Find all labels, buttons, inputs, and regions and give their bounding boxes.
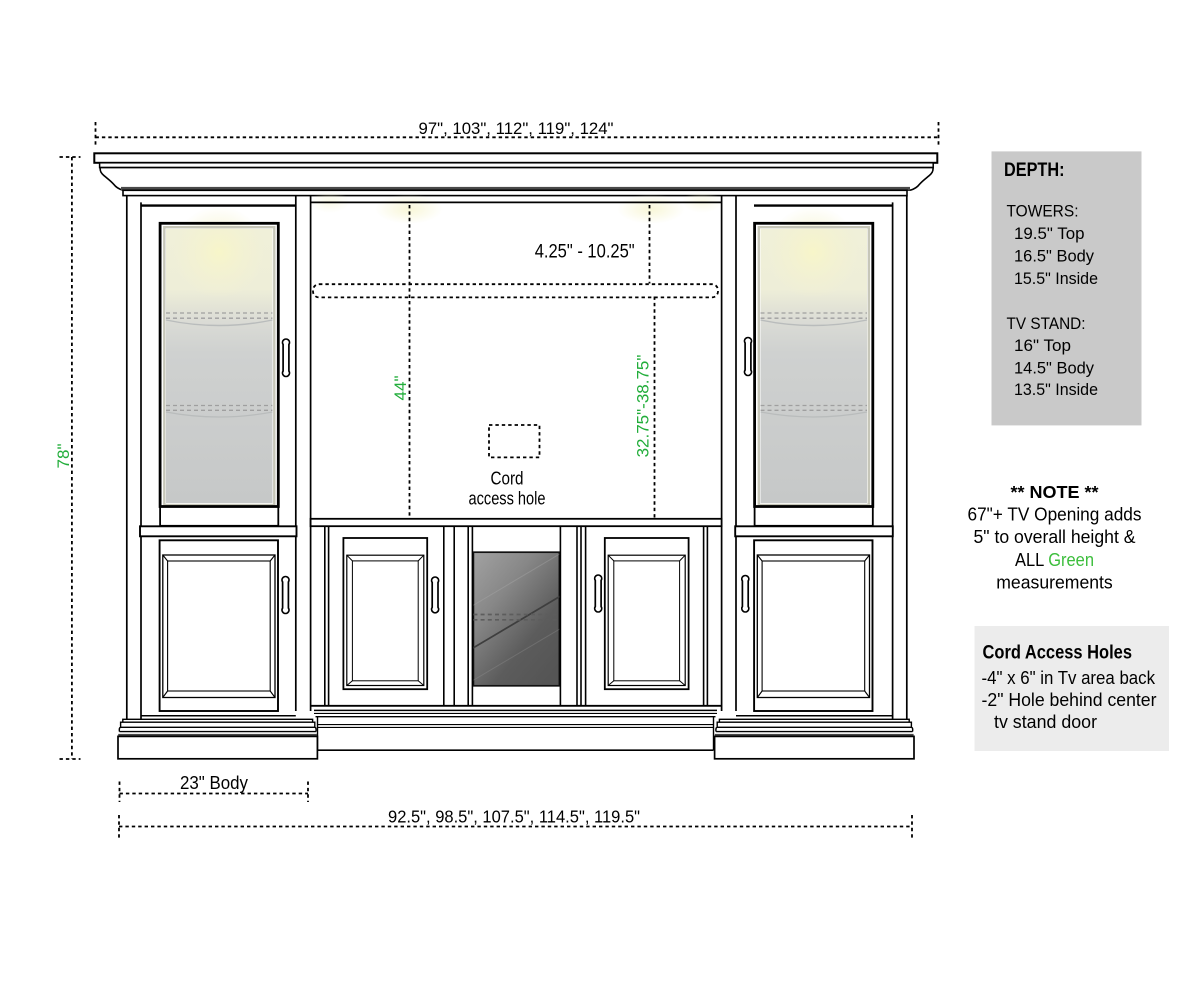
svg-text:TOWERS:: TOWERS: (1007, 202, 1079, 221)
svg-text:4.25" - 10.25": 4.25" - 10.25" (535, 241, 635, 263)
svg-text:-4" x 6" in Tv area back: -4" x 6" in Tv area back (982, 668, 1156, 688)
svg-text:tv stand door: tv stand door (994, 712, 1097, 732)
svg-text:78": 78" (54, 444, 73, 469)
svg-text:access hole: access hole (469, 489, 546, 509)
svg-text:67"+ TV Opening adds: 67"+ TV Opening adds (968, 505, 1142, 525)
svg-text:5" to overall height &: 5" to overall height & (974, 527, 1136, 547)
svg-text:-2" Hole behind center: -2" Hole behind center (982, 690, 1157, 710)
svg-text:14.5" Body: 14.5" Body (1014, 359, 1094, 378)
svg-text:Cord Access Holes: Cord Access Holes (983, 643, 1133, 664)
svg-text:Cord: Cord (491, 469, 524, 489)
svg-text:44": 44" (391, 376, 410, 401)
svg-text:32.75"-38.75": 32.75"-38.75" (634, 355, 653, 458)
svg-text:15.5" Inside: 15.5" Inside (1014, 269, 1098, 288)
svg-text:97", 103", 112", 119", 124": 97", 103", 112", 119", 124" (419, 119, 614, 138)
svg-text:ALL Green: ALL Green (1015, 550, 1094, 570)
svg-text:92.5", 98.5", 107.5", 114.5",: 92.5", 98.5", 107.5", 114.5", 119.5" (388, 807, 640, 827)
svg-text:13.5" Inside: 13.5" Inside (1014, 380, 1098, 399)
svg-text:16.5" Body: 16.5" Body (1014, 247, 1094, 266)
svg-text:16" Top: 16" Top (1014, 336, 1071, 355)
svg-text:DEPTH:: DEPTH: (1004, 160, 1065, 181)
svg-text:TV STAND:: TV STAND: (1007, 314, 1086, 333)
svg-text:23" Body: 23" Body (180, 773, 248, 793)
svg-text:19.5" Top: 19.5" Top (1014, 224, 1085, 243)
svg-text:** NOTE **: ** NOTE ** (1011, 482, 1099, 502)
svg-text:measurements: measurements (996, 573, 1113, 593)
